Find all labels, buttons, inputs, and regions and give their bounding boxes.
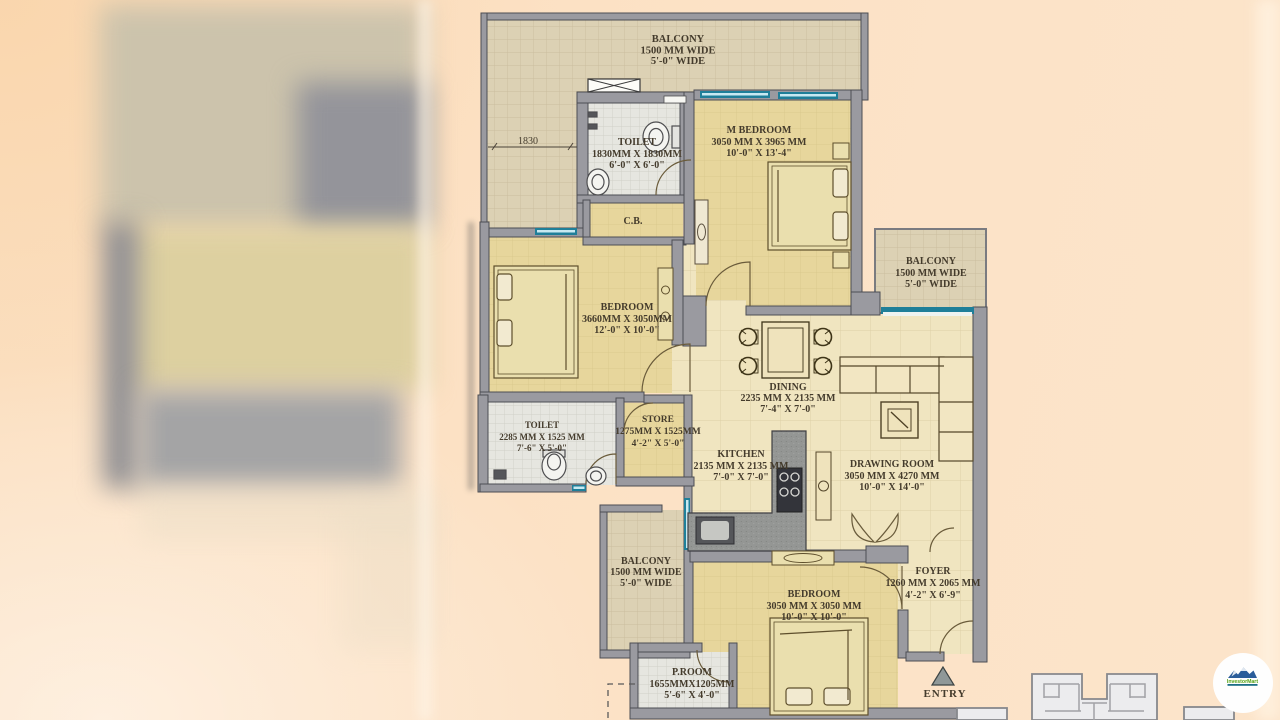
svg-text:5'-0" WIDE: 5'-0" WIDE	[905, 279, 957, 290]
svg-text:BALCONY: BALCONY	[652, 34, 705, 45]
svg-text:2235 MM X 2135 MM: 2235 MM X 2135 MM	[741, 393, 837, 404]
svg-text:C.B.: C.B.	[624, 216, 643, 227]
svg-text:6'-0" X 6'-0": 6'-0" X 6'-0"	[609, 160, 665, 171]
svg-text:1500 MM WIDE: 1500 MM WIDE	[895, 268, 967, 279]
svg-text:1655MMX1205MM: 1655MMX1205MM	[650, 679, 736, 690]
svg-text:TOILET: TOILET	[618, 137, 656, 148]
svg-text:1500 MM WIDE: 1500 MM WIDE	[640, 46, 715, 57]
svg-text:2285 MM X 1525 MM: 2285 MM X 1525 MM	[499, 432, 585, 442]
svg-text:KITCHEN: KITCHEN	[717, 449, 765, 460]
svg-text:12'-0" X 10'-0": 12'-0" X 10'-0"	[594, 325, 660, 336]
svg-text:1830: 1830	[518, 136, 538, 147]
svg-text:10'-0" X 10'-0": 10'-0" X 10'-0"	[781, 612, 847, 623]
svg-text:5'-6" X 4'-0": 5'-6" X 4'-0"	[664, 690, 720, 701]
svg-text:4'-2" X 6'-9": 4'-2" X 6'-9"	[905, 590, 961, 601]
svg-text:1260 MM X 2065 MM: 1260 MM X 2065 MM	[886, 578, 982, 589]
svg-text:10'-0" X 14'-0": 10'-0" X 14'-0"	[859, 482, 925, 493]
svg-text:BEDROOM: BEDROOM	[788, 589, 841, 600]
svg-text:3660MM X 3050MM: 3660MM X 3050MM	[582, 314, 673, 325]
svg-text:1830MM X 1830MM: 1830MM X 1830MM	[592, 149, 683, 160]
svg-text:STORE: STORE	[642, 415, 674, 425]
svg-text:2135 MM X 2135 MM: 2135 MM X 2135 MM	[694, 461, 790, 472]
svg-text:P.ROOM: P.ROOM	[672, 667, 712, 678]
svg-text:TOILET: TOILET	[525, 420, 559, 430]
svg-text:1275MM X 1525MM: 1275MM X 1525MM	[615, 427, 701, 437]
svg-text:BALCONY: BALCONY	[621, 556, 672, 567]
svg-text:M BEDROOM: M BEDROOM	[727, 125, 792, 136]
svg-text:1500 MM WIDE: 1500 MM WIDE	[610, 567, 682, 578]
svg-text:FOYER: FOYER	[916, 566, 952, 577]
svg-text:7'-6" X 5'-0": 7'-6" X 5'-0"	[517, 443, 567, 453]
svg-text:DINING: DINING	[769, 382, 806, 393]
svg-text:3050 MM X 4270 MM: 3050 MM X 4270 MM	[845, 471, 941, 482]
svg-text:5'-0" WIDE: 5'-0" WIDE	[651, 56, 705, 67]
svg-text:BEDROOM: BEDROOM	[601, 302, 654, 313]
svg-text:10'-0" X 13'-4": 10'-0" X 13'-4"	[726, 148, 792, 159]
svg-text:7'-4" X 7'-0": 7'-4" X 7'-0"	[760, 404, 816, 415]
svg-text:4'-2" X 5'-0": 4'-2" X 5'-0"	[632, 439, 685, 449]
svg-text:7'-0" X 7'-0": 7'-0" X 7'-0"	[713, 472, 769, 483]
svg-text:5'-0" WIDE: 5'-0" WIDE	[620, 578, 672, 589]
svg-text:ENTRY: ENTRY	[923, 688, 966, 700]
svg-text:DRAWING ROOM: DRAWING ROOM	[850, 459, 935, 470]
svg-text:3050 MM X 3050 MM: 3050 MM X 3050 MM	[767, 601, 863, 612]
svg-text:3050 MM X 3965 MM: 3050 MM X 3965 MM	[712, 137, 808, 148]
svg-text:BALCONY: BALCONY	[906, 256, 957, 267]
